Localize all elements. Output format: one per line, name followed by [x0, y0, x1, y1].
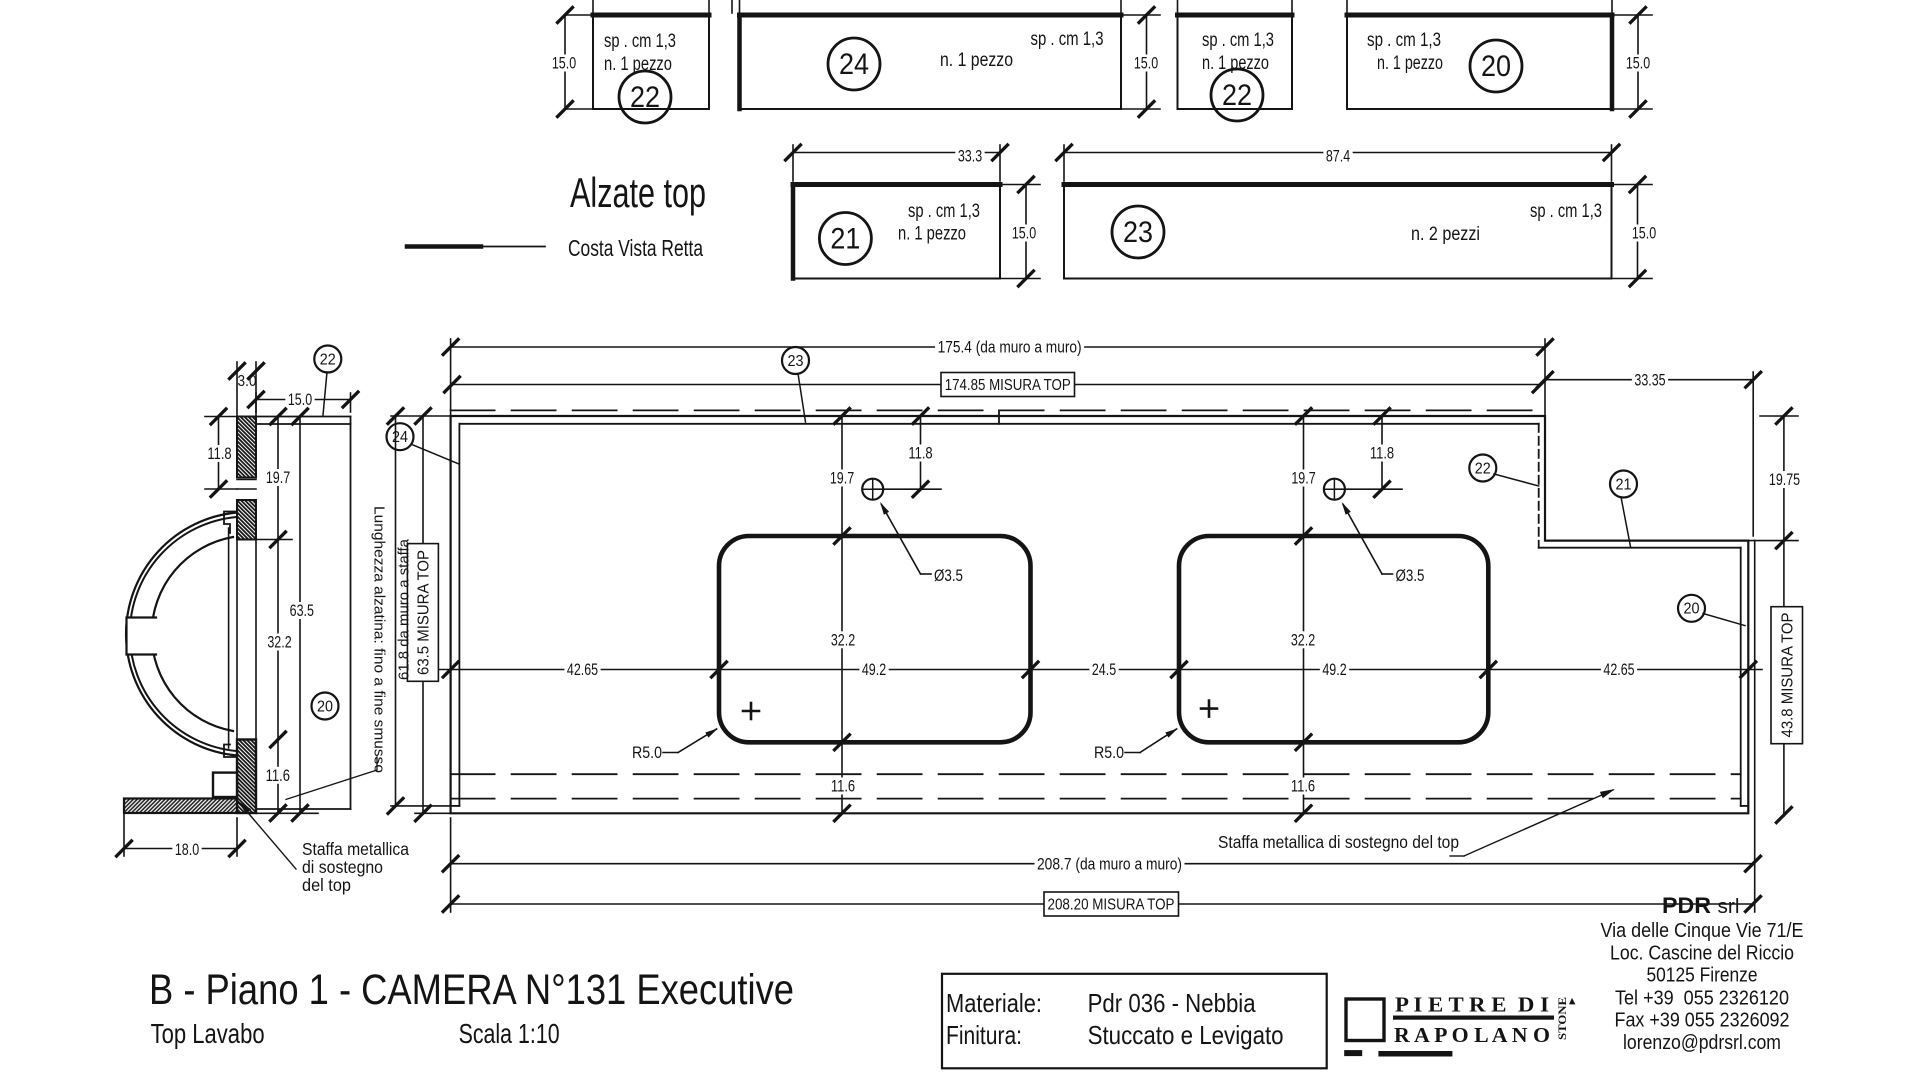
svg-text:Finitura:: Finitura: [946, 1020, 1022, 1050]
svg-text:33.35: 33.35 [1634, 370, 1665, 389]
svg-text:Ø3.5: Ø3.5 [934, 567, 963, 585]
svg-text:19.75: 19.75 [1769, 470, 1800, 489]
svg-text:32.2: 32.2 [267, 633, 291, 652]
svg-text:sp . cm 1,3: sp . cm 1,3 [1367, 29, 1441, 51]
svg-text:24.5: 24.5 [1092, 660, 1116, 679]
svg-text:PDR: PDR [1662, 893, 1711, 918]
svg-text:Alzate top: Alzate top [570, 169, 706, 216]
svg-text:208.20 MISURA TOP: 208.20 MISURA TOP [1048, 897, 1175, 914]
svg-text:Via delle Cinque Vie 71/E: Via delle Cinque Vie 71/E [1601, 919, 1804, 942]
svg-text:lorenzo@pdrsrl.com: lorenzo@pdrsrl.com [1623, 1031, 1781, 1054]
svg-text:Stuccato e Levigato: Stuccato e Levigato [1088, 1020, 1284, 1050]
svg-text:23: 23 [788, 353, 804, 370]
svg-text:15.0: 15.0 [288, 390, 312, 409]
svg-text:Loc. Cascine del Riccio: Loc. Cascine del Riccio [1610, 941, 1794, 964]
svg-text:11.6: 11.6 [266, 766, 290, 785]
svg-text:Materiale:: Materiale: [946, 988, 1042, 1018]
svg-text:Staffa metallica: Staffa metallica [302, 839, 409, 859]
svg-text:Costa Vista Retta: Costa Vista Retta [568, 235, 703, 261]
svg-text:174.85 MISURA TOP: 174.85 MISURA TOP [945, 377, 1071, 394]
svg-text:19.7: 19.7 [830, 469, 854, 488]
svg-text:50125 Firenze: 50125 Firenze [1647, 964, 1758, 987]
svg-text:srl: srl [1718, 896, 1740, 918]
svg-text:19.7: 19.7 [1291, 469, 1315, 488]
svg-text:11.6: 11.6 [1291, 777, 1315, 796]
svg-text:15.0: 15.0 [1134, 54, 1158, 73]
svg-text:22: 22 [1222, 79, 1252, 112]
svg-text:24: 24 [392, 429, 408, 446]
svg-text:11.6: 11.6 [831, 777, 855, 796]
svg-text:Top Lavabo: Top Lavabo [151, 1018, 265, 1049]
svg-text:11.8: 11.8 [908, 444, 932, 463]
svg-text:Staffa metallica di sostegno d: Staffa metallica di sostegno del top [1218, 832, 1459, 852]
svg-text:sp . cm 1,3: sp . cm 1,3 [1530, 200, 1602, 222]
svg-text:R5.0: R5.0 [1094, 744, 1124, 762]
svg-text:63.5: 63.5 [290, 601, 314, 620]
svg-text:43.8 MISURA TOP: 43.8 MISURA TOP [1780, 613, 1797, 738]
svg-text:n. 1 pezzo: n. 1 pezzo [1202, 52, 1269, 74]
svg-text:20: 20 [1684, 601, 1700, 618]
svg-text:20: 20 [317, 698, 333, 715]
svg-text:P I E T R E D I: P I E T R E D I [1395, 993, 1549, 1017]
svg-text:11.8: 11.8 [1370, 444, 1394, 463]
svg-text:15.0: 15.0 [1632, 224, 1656, 243]
svg-text:Tel +39 055 2326120: Tel +39 055 2326120 [1615, 986, 1789, 1009]
svg-text:n. 1 pezzo: n. 1 pezzo [940, 49, 1013, 71]
svg-text:49.2: 49.2 [862, 660, 886, 679]
svg-text:n. 1 pezzo: n. 1 pezzo [898, 223, 966, 245]
svg-text:n. 2 pezzi: n. 2 pezzi [1411, 223, 1480, 245]
svg-text:32.2: 32.2 [1291, 630, 1315, 649]
svg-text:del top: del top [302, 875, 351, 895]
svg-text:STONE: STONE [1557, 997, 1569, 1040]
svg-text:Pdr 036 - Nebbia: Pdr 036 - Nebbia [1088, 988, 1256, 1018]
svg-text:15.0: 15.0 [552, 54, 576, 73]
svg-text:208.7 (da muro a muro): 208.7 (da muro a muro) [1037, 854, 1182, 873]
svg-text:R5.0: R5.0 [632, 744, 662, 762]
svg-text:sp . cm 1,3: sp . cm 1,3 [1202, 29, 1274, 51]
svg-text:20: 20 [1481, 50, 1511, 83]
svg-text:33.3: 33.3 [958, 147, 982, 166]
svg-text:sp . cm 1,3: sp . cm 1,3 [1031, 28, 1104, 50]
svg-text:49.2: 49.2 [1322, 660, 1346, 679]
svg-text:19.7: 19.7 [266, 468, 290, 487]
svg-text:11.8: 11.8 [207, 444, 231, 463]
svg-text:n. 1 pezzo: n. 1 pezzo [1377, 52, 1443, 74]
svg-text:3.0: 3.0 [238, 373, 257, 390]
svg-text:42.65: 42.65 [1603, 660, 1634, 679]
svg-text:15.0: 15.0 [1626, 54, 1650, 73]
svg-text:23: 23 [1123, 216, 1153, 249]
svg-text:Lunghezza alzatina: fino a fin: Lunghezza alzatina: fino a fine smusso [371, 506, 388, 773]
svg-text:61.8 da muro a staffa: 61.8 da muro a staffa [396, 538, 413, 680]
svg-text:21: 21 [830, 223, 860, 256]
svg-text:sp . cm 1,3: sp . cm 1,3 [604, 30, 676, 52]
svg-text:Ø3.5: Ø3.5 [1396, 567, 1425, 585]
svg-text:18.0: 18.0 [175, 840, 199, 859]
svg-text:22: 22 [630, 81, 660, 114]
svg-text:24: 24 [839, 48, 869, 81]
svg-text:sp . cm 1,3: sp . cm 1,3 [908, 200, 980, 222]
svg-text:32.2: 32.2 [831, 630, 855, 649]
svg-text:42.65: 42.65 [567, 660, 598, 679]
svg-text:87.4: 87.4 [1326, 147, 1350, 166]
svg-text:Scala 1:10: Scala 1:10 [459, 1018, 560, 1049]
svg-text:B - Piano 1 - CAMERA N°131 Exe: B - Piano 1 - CAMERA N°131 Executive [149, 966, 794, 1014]
svg-text:R A P O L A N O: R A P O L A N O [1394, 1023, 1550, 1047]
svg-text:22: 22 [1475, 460, 1491, 477]
svg-text:Fax +39 055 2326092: Fax +39 055 2326092 [1615, 1009, 1790, 1032]
svg-text:di sostegno: di sostegno [302, 857, 383, 877]
svg-text:175.4 (da muro a muro): 175.4 (da muro a muro) [938, 338, 1082, 357]
svg-text:15.0: 15.0 [1012, 224, 1036, 243]
svg-text:22: 22 [320, 351, 336, 368]
svg-text:21: 21 [1616, 476, 1632, 493]
svg-text:63.5 MISURA TOP: 63.5 MISURA TOP [416, 550, 433, 675]
